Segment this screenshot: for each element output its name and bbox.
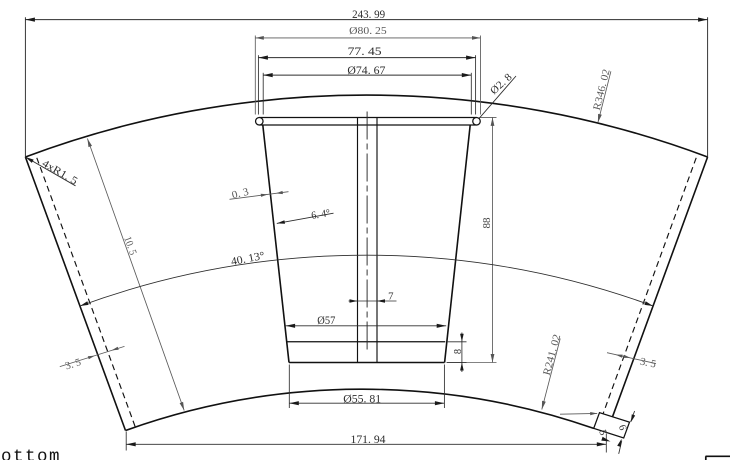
svg-text:Ø55. 81: Ø55. 81 bbox=[343, 393, 381, 405]
svg-text:88: 88 bbox=[481, 218, 493, 229]
svg-text:Ø57: Ø57 bbox=[317, 315, 335, 327]
svg-text:171. 94: 171. 94 bbox=[351, 434, 386, 446]
svg-text:Ø80. 25: Ø80. 25 bbox=[349, 25, 387, 37]
svg-text:bottom: bottom bbox=[0, 447, 61, 460]
svg-text:77. 45: 77. 45 bbox=[348, 46, 382, 58]
svg-text:243. 99: 243. 99 bbox=[352, 9, 385, 21]
svg-text:Ø74. 67: Ø74. 67 bbox=[347, 64, 385, 77]
svg-text:8: 8 bbox=[453, 349, 464, 354]
svg-text:7: 7 bbox=[388, 291, 394, 303]
